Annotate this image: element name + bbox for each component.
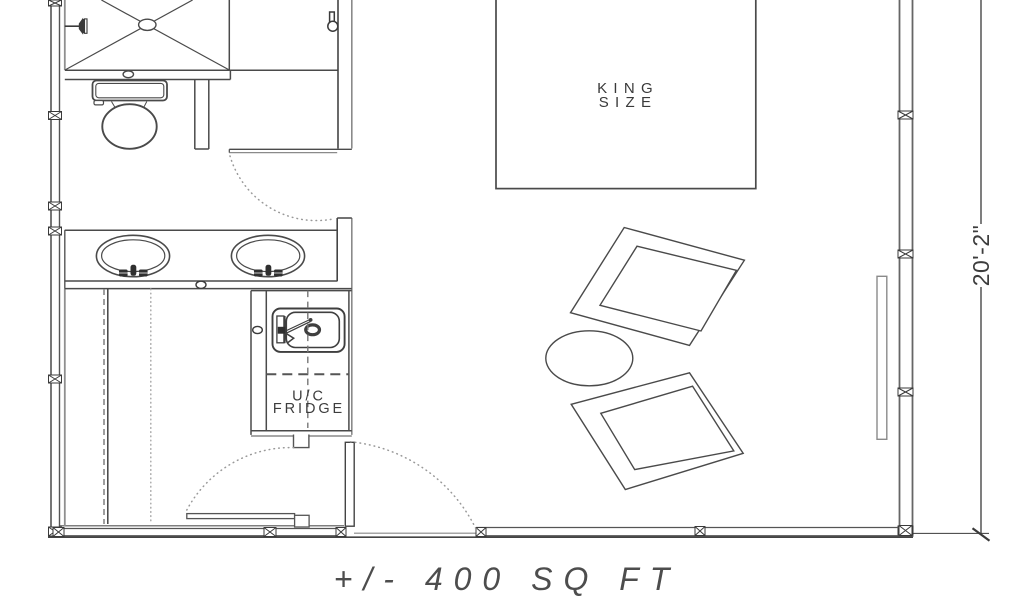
svg-text:20'-2": 20'-2": [968, 225, 994, 287]
svg-text:FRIDGE: FRIDGE: [273, 401, 345, 417]
svg-text:+/- 400 SQ FT: +/- 400 SQ FT: [334, 561, 681, 597]
svg-text:SIZE: SIZE: [599, 94, 658, 111]
